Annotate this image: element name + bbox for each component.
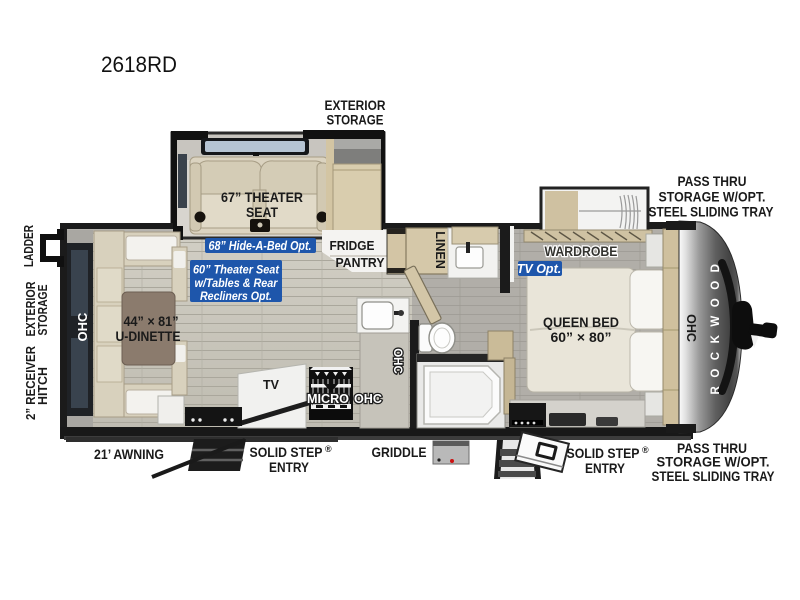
svg-text:OHC: OHC (391, 348, 403, 374)
svg-text:LINEN: LINEN (433, 231, 447, 269)
svg-text:WARDROBE: WARDROBE (545, 243, 618, 259)
svg-text:ENTRY: ENTRY (269, 459, 310, 475)
svg-text:HITCH: HITCH (36, 367, 50, 405)
svg-text:U-DINETTE: U-DINETTE (116, 329, 181, 344)
svg-text:67” THEATER: 67” THEATER (221, 189, 303, 205)
svg-text:®: ® (325, 444, 332, 454)
svg-text:STORAGE: STORAGE (327, 113, 384, 128)
svg-text:TV: TV (263, 378, 280, 392)
svg-text:®: ® (642, 445, 649, 455)
svg-text:2618RD: 2618RD (101, 52, 177, 77)
svg-text:OHC: OHC (354, 391, 383, 406)
svg-text:SOLID STEP: SOLID STEP (250, 444, 323, 460)
svg-text:60” Theater Seat: 60” Theater Seat (193, 263, 280, 277)
svg-text:21’ AWNING: 21’ AWNING (94, 446, 164, 462)
svg-text:GRIDDLE: GRIDDLE (372, 444, 427, 460)
svg-text:STEEL SLIDING TRAY: STEEL SLIDING TRAY (649, 204, 775, 220)
svg-text:PANTRY: PANTRY (336, 255, 385, 270)
svg-text:STEEL SLIDING TRAY: STEEL SLIDING TRAY (652, 468, 776, 484)
svg-text:STORAGE W/OPT.: STORAGE W/OPT. (659, 189, 766, 205)
svg-text:EXTERIOR: EXTERIOR (325, 98, 386, 113)
svg-text:w/Tables & Rear: w/Tables & Rear (195, 276, 279, 290)
svg-text:68” Hide-A-Bed Opt.: 68” Hide-A-Bed Opt. (209, 239, 312, 253)
svg-text:60” × 80”: 60” × 80” (551, 329, 612, 345)
svg-text:LADDER: LADDER (22, 225, 36, 267)
svg-text:ENTRY: ENTRY (585, 460, 626, 476)
svg-text:44” × 81”: 44” × 81” (124, 314, 179, 329)
svg-text:FRIDGE: FRIDGE (330, 238, 375, 253)
svg-text:SOLID STEP: SOLID STEP (567, 445, 640, 461)
svg-text:STORAGE: STORAGE (36, 285, 50, 336)
svg-text:OHC: OHC (75, 312, 90, 342)
svg-text:TV Opt.: TV Opt. (517, 262, 561, 276)
svg-text:ROCKWOOD: ROCKWOOD (710, 256, 722, 395)
svg-text:QUEEN BED: QUEEN BED (543, 314, 619, 330)
svg-text:PASS THRU: PASS THRU (678, 173, 747, 189)
svg-text:Recliners Opt.: Recliners Opt. (200, 289, 272, 303)
svg-text:MICRO: MICRO (307, 391, 349, 406)
svg-text:SEAT: SEAT (246, 204, 278, 220)
svg-text:OHC: OHC (684, 314, 698, 342)
